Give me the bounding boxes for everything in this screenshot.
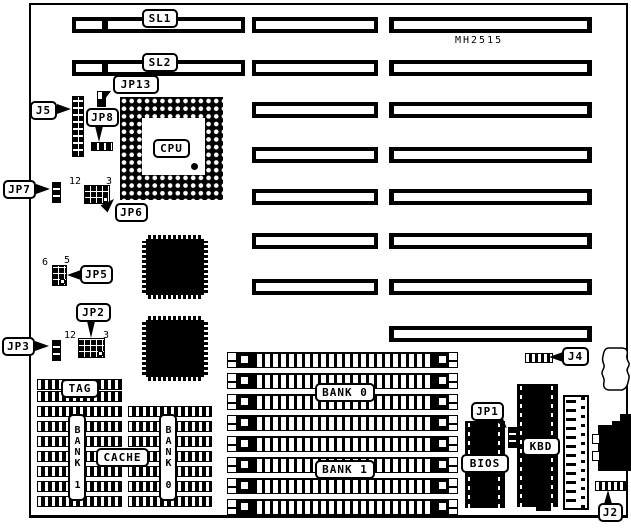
slot-contact-stripe <box>256 21 374 29</box>
jp6-label: JP6 <box>115 203 148 222</box>
isa-slot-row2-right <box>389 60 592 76</box>
simm-socket <box>227 478 458 494</box>
simm-latch-right <box>432 415 458 431</box>
slot-contact-stripe <box>256 151 374 159</box>
motherboard-diagram: MH2515 SL1 S <box>0 0 631 528</box>
slot-contact-stripe <box>394 21 587 29</box>
jp3-label: JP3 <box>2 337 35 356</box>
isa-slot-row5-right <box>389 189 592 205</box>
j5-connector <box>72 96 84 157</box>
slot-contact-stripe <box>394 237 587 245</box>
simm-latch-right <box>432 436 458 452</box>
simm-latch-left <box>227 478 253 494</box>
cache-bank0-label: BANK 0 <box>159 414 177 501</box>
simm-latch-left <box>227 499 253 515</box>
slot-contact-stripe <box>256 64 374 72</box>
isa-slot-row8-right <box>389 326 592 342</box>
jp7-label: JP7 <box>3 180 36 199</box>
simm-latch-right <box>432 499 458 515</box>
simm-socket <box>227 499 458 515</box>
simm-latch-left <box>227 394 253 410</box>
simm-latch-right <box>432 478 458 494</box>
model-number: MH2515 <box>455 35 503 46</box>
din-mount-notch <box>592 451 600 461</box>
simm-socket <box>227 436 458 452</box>
simm-latch-left <box>227 352 253 368</box>
memory-bank0-label: BANK 0 <box>315 383 375 402</box>
jp2-leader-arrow <box>87 321 95 338</box>
simm-latch-left <box>227 457 253 473</box>
jp7-leader-arrow <box>36 184 50 194</box>
simm-contacts <box>253 478 432 494</box>
simm-latch-left <box>227 436 253 452</box>
jp8-label: JP8 <box>86 108 119 127</box>
isa-slot-row4-right <box>389 147 592 163</box>
slot-contact-stripe <box>76 64 102 72</box>
jp1-label: JP1 <box>471 402 504 421</box>
simm-latch-right <box>432 394 458 410</box>
jp1-jumper <box>508 427 517 448</box>
jp5-label: JP5 <box>80 265 113 284</box>
cache-label: CACHE <box>96 448 149 467</box>
slot-label-sl1: SL1 <box>142 9 178 28</box>
memory-bank1-label: BANK 1 <box>315 460 375 479</box>
jp8-leader-arrow <box>95 126 103 142</box>
simm-contacts <box>253 436 432 452</box>
slot-contact-stripe <box>76 21 102 29</box>
jp8-jumper <box>91 142 113 151</box>
jp6-pin3-label: 3 <box>106 176 112 187</box>
simm-socket <box>227 415 458 431</box>
isa-slot-row6-right <box>389 233 592 249</box>
cache-bank1-label: BANK 1 <box>68 414 86 501</box>
isa-slot-row5-mid <box>252 189 378 205</box>
jp3-jumper <box>52 340 61 361</box>
simm-latch-right <box>432 373 458 389</box>
slot-contact-stripe <box>394 283 587 291</box>
slot-contact-stripe <box>394 193 587 201</box>
slot-contact-stripe <box>256 237 374 245</box>
keyboard-din-connector <box>598 425 631 471</box>
isa-slot-row7-mid <box>252 279 378 295</box>
qfp-chip-1 <box>142 235 208 299</box>
jp13-leader-arrow <box>102 91 111 103</box>
simm-contacts <box>253 415 432 431</box>
jp3-leader-arrow <box>35 341 49 351</box>
power-connector <box>563 395 589 510</box>
j2-leader-arrow <box>604 490 612 504</box>
jp2-open-pin <box>98 351 103 356</box>
simm-latch-right <box>432 352 458 368</box>
tag-label: TAG <box>61 379 99 398</box>
din-mount-notch <box>592 434 600 444</box>
slot-contact-stripe <box>256 283 374 291</box>
j4-label: J4 <box>562 347 589 366</box>
j2-label: J2 <box>598 503 623 522</box>
isa-slot-row3-right <box>389 102 592 118</box>
bios-label: BIOS <box>461 454 509 473</box>
jp5-leader-arrow <box>67 270 81 280</box>
jp2-pin3-label: 3 <box>103 330 109 341</box>
chip-body <box>146 320 204 377</box>
jp5-jumper <box>52 265 67 286</box>
slot-contact-stripe <box>394 330 587 338</box>
slot-label-sl2: SL2 <box>142 53 178 72</box>
slot-contact-stripe <box>394 106 587 114</box>
jp5-pin6-label: 6 <box>42 257 48 268</box>
board-cutout-shape <box>600 346 631 392</box>
jp6-pin12-label: 12 <box>69 176 81 187</box>
kbd-label: KBD <box>522 437 560 456</box>
jp2-label: JP2 <box>76 303 111 322</box>
isa-slot-row4-mid <box>252 147 378 163</box>
slot-contact-stripe <box>394 151 587 159</box>
chip-body <box>146 239 204 295</box>
isa-slot-row1-mid <box>252 17 378 33</box>
isa-slot-row7-right <box>389 279 592 295</box>
simm-contacts <box>253 352 432 368</box>
j5-label: J5 <box>30 101 57 120</box>
kbd-chip-tab <box>536 506 551 511</box>
cpu-label: CPU <box>153 139 190 158</box>
slot-contact-stripe <box>256 193 374 201</box>
slot-contact-stripe <box>256 106 374 114</box>
jp2-jumper <box>78 338 105 358</box>
qfp-chip-2 <box>142 316 208 381</box>
simm-latch-left <box>227 415 253 431</box>
cpu-pin1-dot <box>191 163 198 170</box>
simm-latch-left <box>227 373 253 389</box>
j5-leader-arrow <box>57 104 71 114</box>
j4-leader-arrow <box>549 352 563 362</box>
jp5-pin5-label: 5 <box>64 255 70 266</box>
slot-contact-stripe <box>394 64 587 72</box>
isa-slot-row2-mid <box>252 60 378 76</box>
simm-socket <box>227 352 458 368</box>
isa-slot-row1-right <box>389 17 592 33</box>
jp7-jumper <box>52 182 61 203</box>
jp5-open-pin <box>60 279 65 284</box>
simm-latch-right <box>432 457 458 473</box>
jp13-label: JP13 <box>113 75 159 94</box>
isa-slot-row3-mid <box>252 102 378 118</box>
isa-slot-row6-mid <box>252 233 378 249</box>
simm-contacts <box>253 499 432 515</box>
jp2-pin12-label: 12 <box>64 330 76 341</box>
